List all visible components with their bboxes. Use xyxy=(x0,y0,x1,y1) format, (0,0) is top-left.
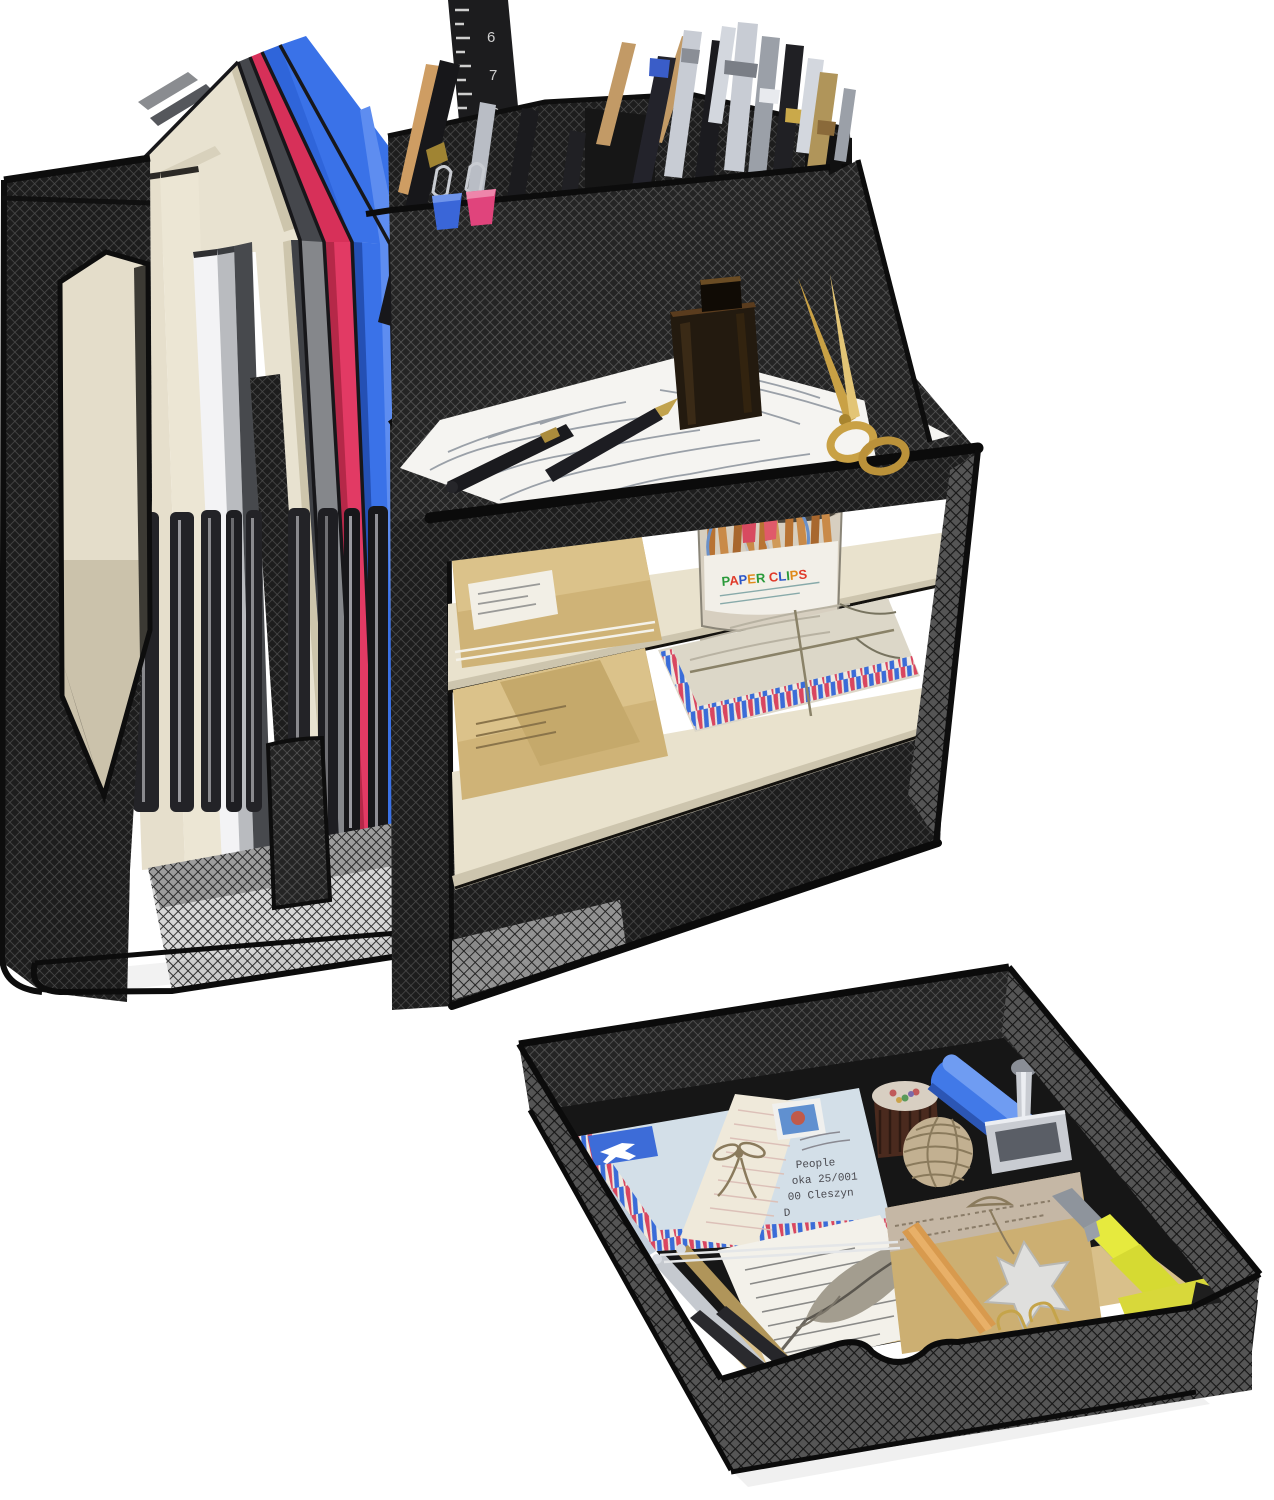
svg-text:7: 7 xyxy=(489,67,497,84)
svg-text:D: D xyxy=(783,1208,791,1220)
svg-text:6: 6 xyxy=(487,29,495,46)
